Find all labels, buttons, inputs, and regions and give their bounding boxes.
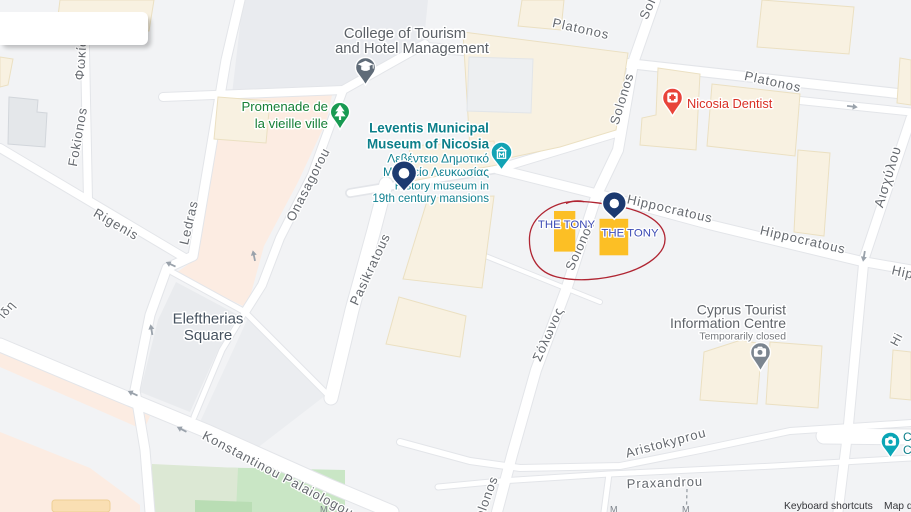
svg-text:la vieille ville: la vieille ville xyxy=(255,116,328,131)
svg-text:Cen: Cen xyxy=(903,443,911,457)
svg-text:Promenade de: Promenade de xyxy=(241,99,328,114)
svg-text:Square: Square xyxy=(184,327,232,344)
svg-text:Leventis Municipal: Leventis Municipal xyxy=(369,121,489,136)
svg-text:Map d: Map d xyxy=(884,501,911,512)
svg-text:Information Centre: Information Centre xyxy=(670,315,786,331)
svg-text:Cyp: Cyp xyxy=(903,430,911,444)
svg-text:Temporarily closed: Temporarily closed xyxy=(699,332,786,343)
svg-text:Praxandrou: Praxandrou xyxy=(626,474,703,492)
svg-text:M: M xyxy=(682,505,690,512)
svg-text:19th century mansions: 19th century mansions xyxy=(372,192,489,205)
svg-text:M: M xyxy=(320,505,328,512)
svg-text:Eleftherias: Eleftherias xyxy=(173,311,244,328)
svg-text:Nicosia Dentist: Nicosia Dentist xyxy=(687,96,773,111)
svg-text:College of Tourism: College of Tourism xyxy=(344,26,466,42)
svg-text:THE TONY: THE TONY xyxy=(538,219,596,231)
svg-text:M: M xyxy=(610,505,618,512)
svg-text:THE TONY: THE TONY xyxy=(601,228,659,240)
svg-text:and Hotel Management: and Hotel Management xyxy=(335,41,489,57)
svg-text:Keyboard shortcuts: Keyboard shortcuts xyxy=(784,501,873,512)
svg-text:Museum of Nicosia: Museum of Nicosia xyxy=(367,137,490,152)
